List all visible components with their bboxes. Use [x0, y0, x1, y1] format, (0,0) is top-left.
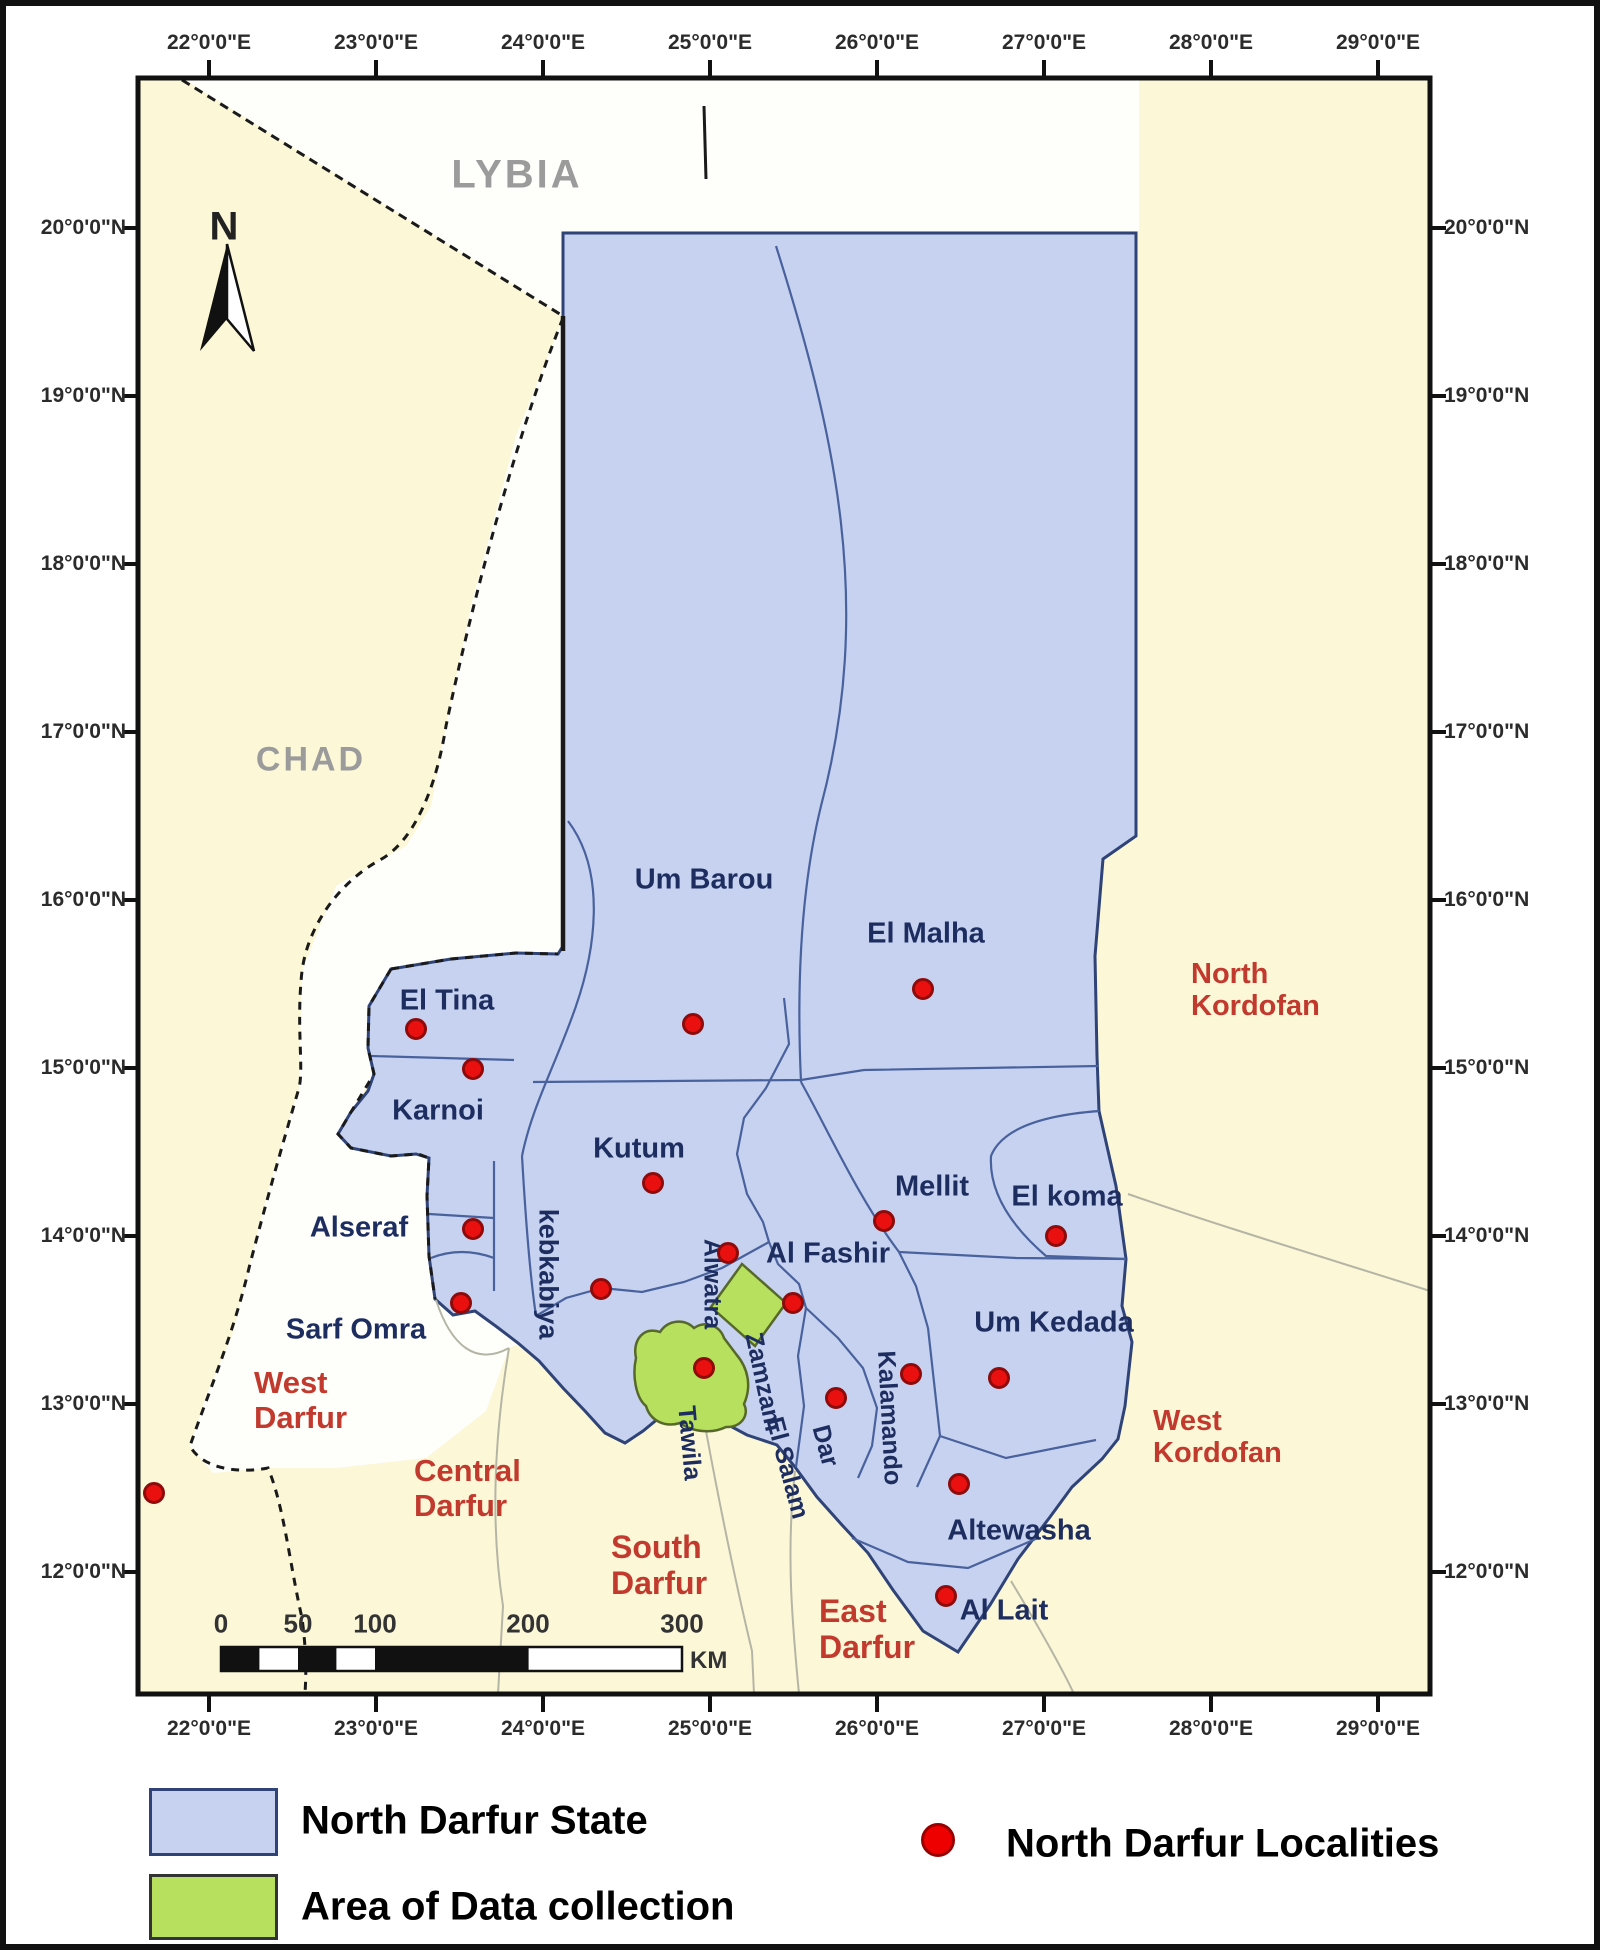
region-label-line: South	[611, 1530, 707, 1566]
region-label: CentralDarfur	[414, 1454, 521, 1523]
axis-label-bottom: 22°0'0"E	[167, 1717, 251, 1741]
axis-tick	[1376, 1694, 1380, 1712]
axis-label-top: 23°0'0"E	[334, 31, 418, 55]
locality-label: Um Kedada	[974, 1307, 1134, 1340]
region-label-line: East	[819, 1594, 915, 1630]
axis-label-left: 14°0'0"N	[41, 1224, 126, 1248]
locality-label: Al Lait	[960, 1595, 1049, 1628]
region-label-line: West	[1153, 1405, 1282, 1437]
legend-swatch-area	[149, 1874, 278, 1940]
axis-label-left: 15°0'0"N	[41, 1056, 126, 1080]
locality-label: Al Fashir	[766, 1238, 890, 1271]
axis-label-right: 15°0'0"N	[1444, 1056, 1529, 1080]
locality-dot	[782, 1292, 804, 1314]
legend-locality-dot-icon	[921, 1823, 955, 1857]
locality-dot	[912, 978, 934, 1000]
country-label: CHAD	[256, 741, 366, 780]
axis-label-top: 25°0'0"E	[668, 31, 752, 55]
axis-tick	[541, 60, 545, 78]
axis-label-right: 12°0'0"N	[1444, 1560, 1529, 1584]
region-label-line: Kordofan	[1191, 990, 1320, 1022]
region-label: NorthKordofan	[1191, 958, 1320, 1023]
north-arrow-label: N	[210, 205, 239, 250]
axis-label-top: 29°0'0"E	[1336, 31, 1420, 55]
axis-tick	[1209, 1694, 1213, 1712]
axis-label-top: 26°0'0"E	[835, 31, 919, 55]
region-label-line: Central	[414, 1454, 521, 1489]
scale-bar-number: 50	[284, 1609, 313, 1640]
locality-label: Kutum	[593, 1133, 685, 1166]
axis-tick	[708, 1694, 712, 1712]
axis-label-bottom: 27°0'0"E	[1002, 1717, 1086, 1741]
locality-dot	[873, 1210, 895, 1232]
scale-bar-number: 200	[506, 1609, 549, 1640]
locality-dot	[405, 1018, 427, 1040]
region-label-line: Kordofan	[1153, 1437, 1282, 1469]
scale-bar-number: 0	[214, 1609, 228, 1640]
axis-label-left: 13°0'0"N	[41, 1392, 126, 1416]
locality-dot	[900, 1363, 922, 1385]
locality-dot	[450, 1292, 472, 1314]
locality-label: Altewasha	[947, 1515, 1090, 1548]
locality-dot	[988, 1367, 1010, 1389]
axis-tick	[541, 1694, 545, 1712]
axis-tick	[875, 1694, 879, 1712]
locality-dot	[948, 1473, 970, 1495]
region-label: WestKordofan	[1153, 1405, 1282, 1470]
region-label-line: Darfur	[611, 1566, 707, 1602]
country-label: LYBIA	[451, 153, 582, 198]
axis-label-right: 14°0'0"N	[1444, 1224, 1529, 1248]
axis-tick	[207, 60, 211, 78]
locality-dot	[590, 1278, 612, 1300]
axis-tick	[374, 1694, 378, 1712]
map-figure: 22°0'0"E23°0'0"E24°0'0"E25°0'0"E26°0'0"E…	[0, 0, 1600, 1950]
locality-dot	[462, 1058, 484, 1080]
axis-label-right: 18°0'0"N	[1444, 552, 1529, 576]
axis-label-right: 20°0'0"N	[1444, 216, 1529, 240]
axis-tick	[374, 60, 378, 78]
axis-label-left: 17°0'0"N	[41, 720, 126, 744]
locality-label: Sarf Omra	[286, 1314, 426, 1347]
region-label-line: North	[1191, 958, 1320, 990]
axis-tick	[207, 1694, 211, 1712]
axis-label-left: 20°0'0"N	[41, 216, 126, 240]
locality-dot	[682, 1013, 704, 1035]
axis-label-bottom: 25°0'0"E	[668, 1717, 752, 1741]
locality-label: Um Barou	[635, 864, 774, 897]
region-label-line: Darfur	[819, 1630, 915, 1666]
axis-tick	[1042, 1694, 1046, 1712]
locality-dot	[143, 1482, 165, 1504]
locality-label: El Tina	[400, 985, 495, 1018]
legend-label-localities: North Darfur Localities	[1006, 1822, 1439, 1867]
scale-bar-number: 100	[353, 1609, 396, 1640]
locality-dot	[693, 1357, 715, 1379]
axis-label-bottom: 28°0'0"E	[1169, 1717, 1253, 1741]
axis-label-top: 22°0'0"E	[167, 31, 251, 55]
locality-label: El Malha	[867, 918, 985, 951]
axis-tick	[1376, 60, 1380, 78]
locality-dot	[462, 1218, 484, 1240]
axis-label-bottom: 29°0'0"E	[1336, 1717, 1420, 1741]
locality-dot	[1045, 1225, 1067, 1247]
legend-swatch-state	[149, 1788, 278, 1856]
locality-dot	[935, 1585, 957, 1607]
scale-bar-unit: KM	[690, 1647, 727, 1675]
locality-dot	[717, 1242, 739, 1264]
axis-label-left: 12°0'0"N	[41, 1560, 126, 1584]
scale-bar-number: 300	[660, 1609, 703, 1640]
region-label-line: Darfur	[254, 1401, 347, 1436]
axis-label-right: 16°0'0"N	[1444, 888, 1529, 912]
axis-label-bottom: 23°0'0"E	[334, 1717, 418, 1741]
axis-label-top: 24°0'0"E	[501, 31, 585, 55]
region-label: SouthDarfur	[611, 1530, 707, 1602]
axis-label-right: 13°0'0"N	[1444, 1392, 1529, 1416]
scale-bar	[221, 1647, 682, 1671]
axis-tick	[1209, 60, 1213, 78]
axis-label-top: 28°0'0"E	[1169, 31, 1253, 55]
legend-label-state: North Darfur State	[301, 1799, 648, 1844]
locality-dot	[825, 1387, 847, 1409]
axis-label-right: 17°0'0"N	[1444, 720, 1529, 744]
legend-label-area: Area of Data collection	[301, 1885, 734, 1930]
locality-label: kebkabiya	[533, 1209, 564, 1340]
locality-dot	[642, 1172, 664, 1194]
locality-label: Mellit	[895, 1171, 969, 1204]
axis-label-right: 19°0'0"N	[1444, 384, 1529, 408]
axis-label-bottom: 26°0'0"E	[835, 1717, 919, 1741]
locality-label: El koma	[1011, 1181, 1122, 1214]
locality-label: Alseraf	[310, 1212, 408, 1245]
region-label-line: Darfur	[414, 1489, 521, 1524]
axis-label-left: 19°0'0"N	[41, 384, 126, 408]
region-label-line: West	[254, 1366, 347, 1401]
region-label: WestDarfur	[254, 1366, 347, 1435]
axis-label-left: 18°0'0"N	[41, 552, 126, 576]
axis-label-left: 16°0'0"N	[41, 888, 126, 912]
axis-label-bottom: 24°0'0"E	[501, 1717, 585, 1741]
map-canvas	[6, 6, 1600, 1950]
axis-tick	[1042, 60, 1046, 78]
locality-label: Karnoi	[392, 1095, 484, 1128]
axis-tick	[708, 60, 712, 78]
region-label: EastDarfur	[819, 1594, 915, 1666]
axis-tick	[875, 60, 879, 78]
axis-label-top: 27°0'0"E	[1002, 31, 1086, 55]
